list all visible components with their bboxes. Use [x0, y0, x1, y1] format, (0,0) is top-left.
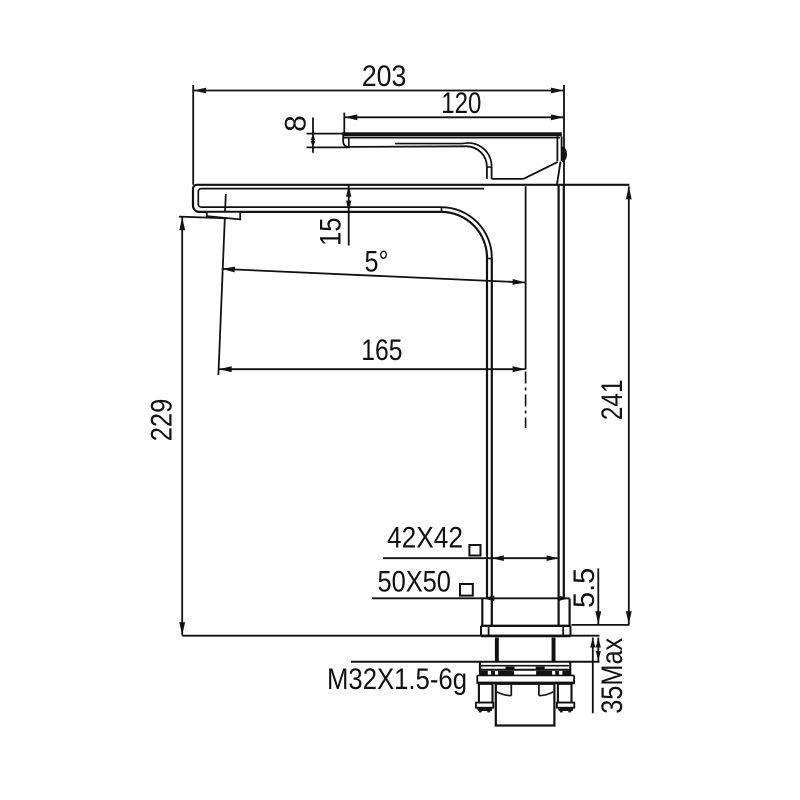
svg-text:35Max: 35Max: [596, 638, 629, 714]
svg-text:165: 165: [361, 334, 402, 367]
svg-text:241: 241: [596, 380, 629, 421]
svg-text:120: 120: [441, 87, 481, 120]
svg-text:5.5: 5.5: [568, 568, 601, 608]
svg-text:203: 203: [362, 60, 407, 93]
svg-text:8: 8: [280, 115, 313, 132]
svg-text:5°: 5°: [365, 245, 389, 278]
svg-text:42X42: 42X42: [387, 522, 463, 555]
svg-text:15: 15: [314, 218, 347, 247]
svg-text:50X50: 50X50: [377, 566, 451, 599]
svg-text:M32X1.5-6g: M32X1.5-6g: [327, 663, 467, 696]
svg-text:229: 229: [145, 399, 178, 442]
